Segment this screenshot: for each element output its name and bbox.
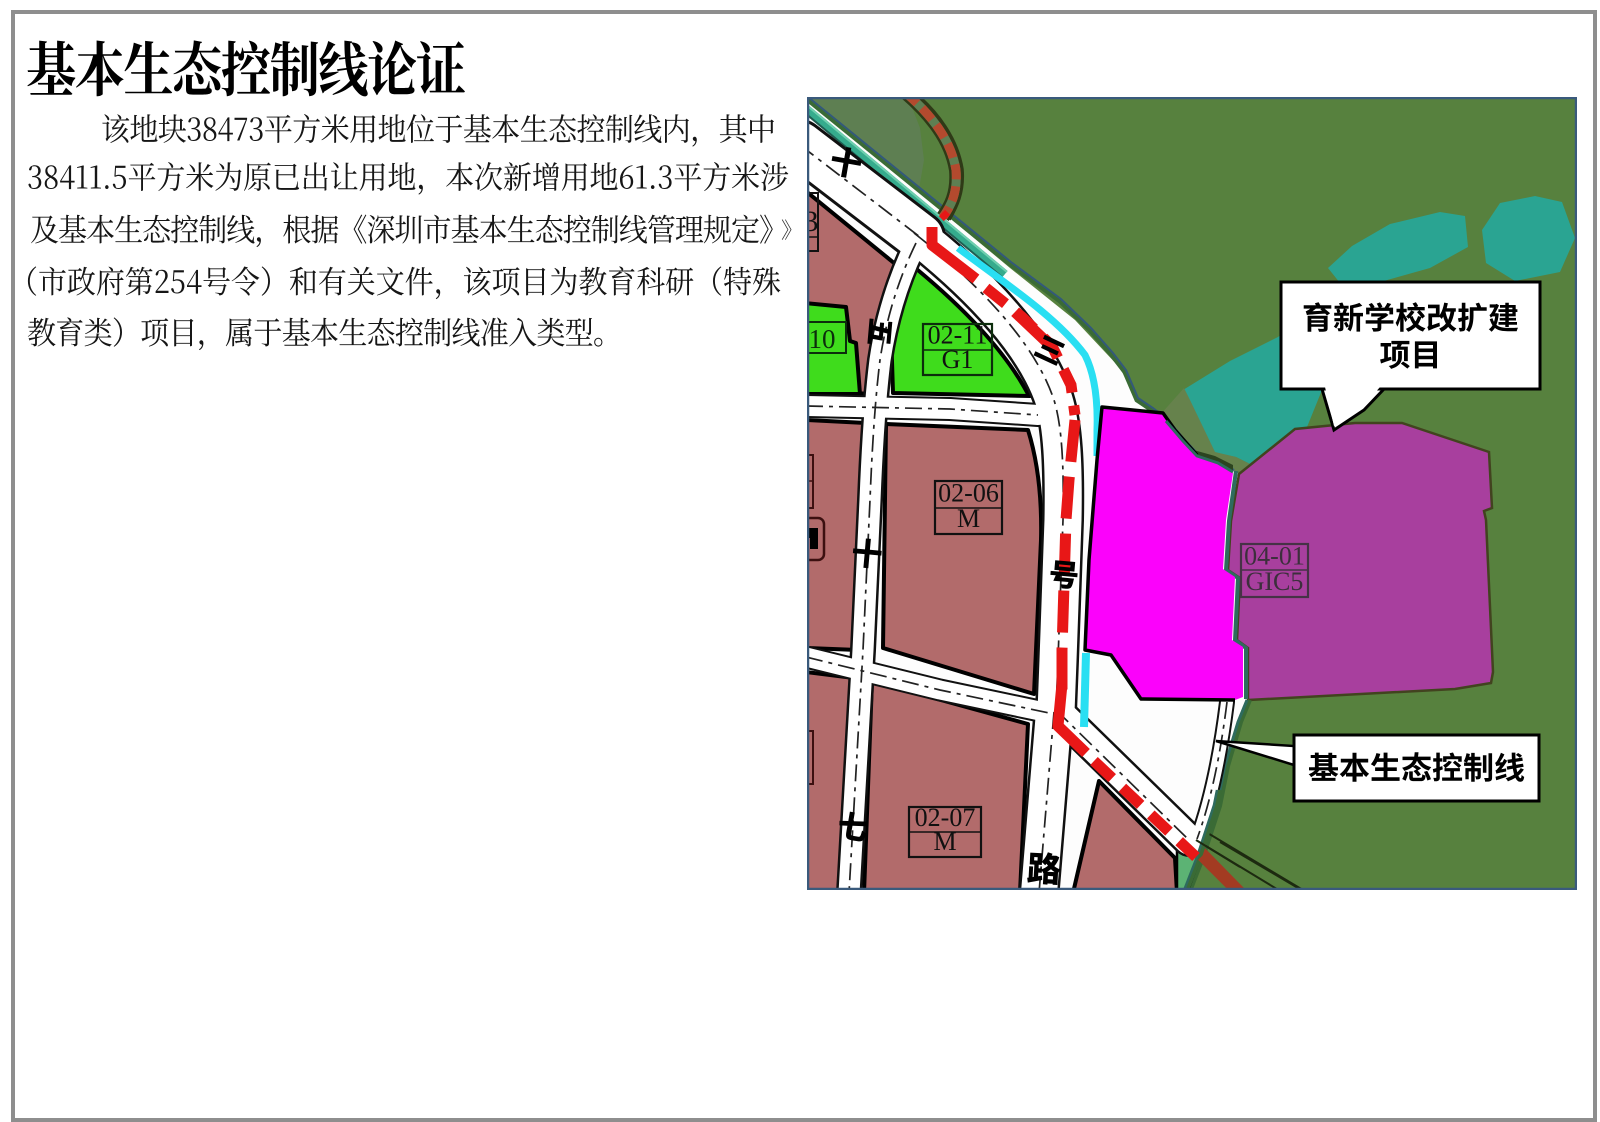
svg-text:M: M [933,827,956,856]
svg-text:GIC5: GIC5 [1246,567,1304,596]
svg-text:G1: G1 [942,345,974,374]
svg-text:10: 10 [809,324,836,354]
svg-text:M: M [957,504,980,533]
